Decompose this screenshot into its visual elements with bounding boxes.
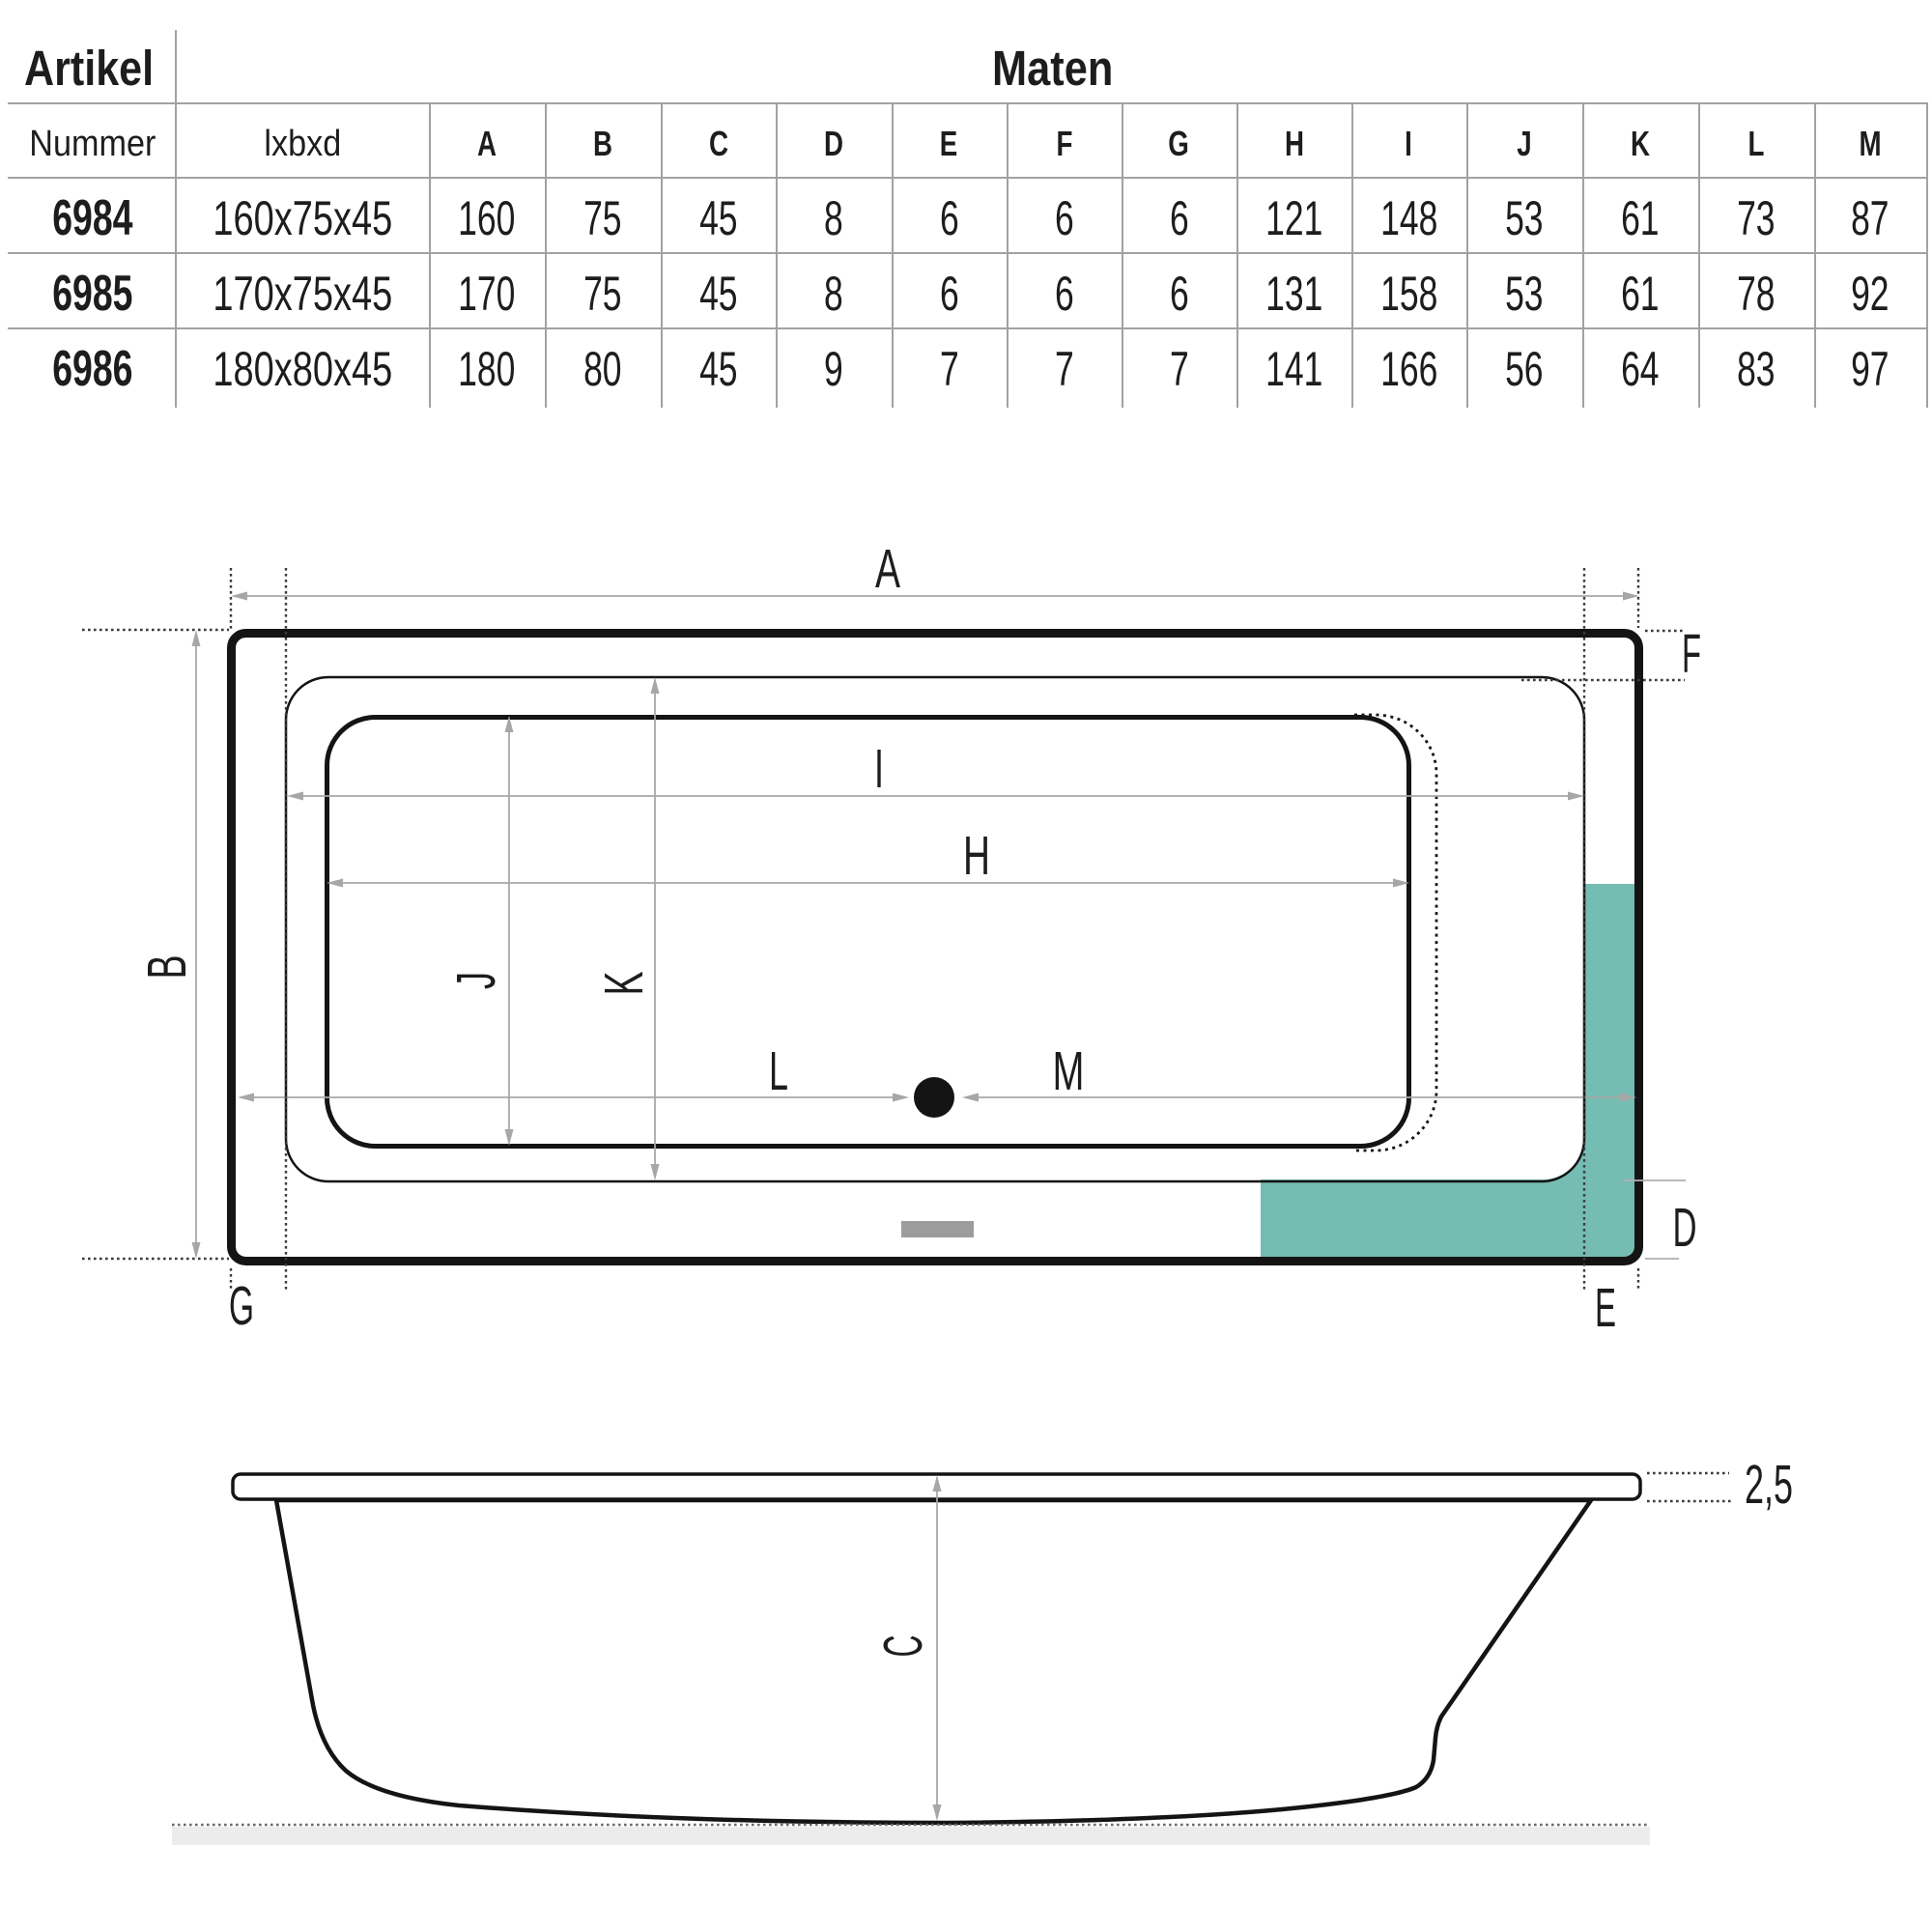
svg-text:I: I	[874, 738, 884, 800]
svg-text:H: H	[963, 825, 990, 887]
svg-text:D: D	[1673, 1197, 1697, 1259]
svg-text:L: L	[769, 1040, 788, 1102]
svg-text:F: F	[1682, 623, 1701, 685]
svg-text:K: K	[593, 972, 655, 996]
svg-text:G: G	[229, 1275, 254, 1337]
svg-text:M: M	[1053, 1040, 1085, 1102]
svg-text:B: B	[136, 955, 198, 980]
svg-text:J: J	[445, 972, 507, 989]
svg-text:C: C	[872, 1635, 934, 1658]
svg-text:A: A	[875, 538, 900, 600]
svg-text:2,5: 2,5	[1745, 1454, 1793, 1516]
svg-text:E: E	[1595, 1277, 1616, 1339]
